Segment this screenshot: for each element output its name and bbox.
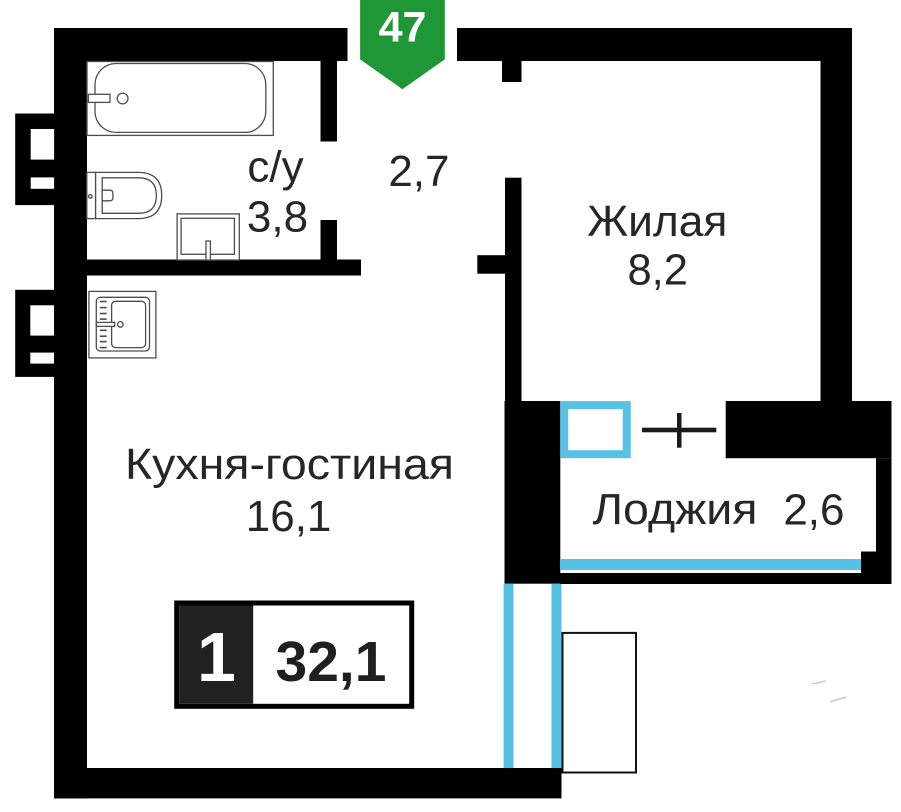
svg-text:16,1: 16,1 bbox=[246, 492, 332, 541]
svg-text:32,1: 32,1 bbox=[276, 630, 387, 694]
svg-text:2,6: 2,6 bbox=[783, 486, 844, 535]
svg-text:47: 47 bbox=[379, 4, 427, 52]
svg-text:Лоджия: Лоджия bbox=[593, 485, 758, 534]
svg-text:1: 1 bbox=[197, 618, 236, 696]
svg-text:Жилая: Жилая bbox=[587, 198, 727, 246]
svg-text:8,2: 8,2 bbox=[627, 247, 687, 295]
svg-text:с/у: с/у bbox=[247, 143, 303, 192]
svg-text:Кухня-гостиная: Кухня-гостиная bbox=[125, 440, 454, 489]
svg-text:3,8: 3,8 bbox=[247, 193, 308, 242]
svg-text:2,7: 2,7 bbox=[388, 147, 449, 196]
